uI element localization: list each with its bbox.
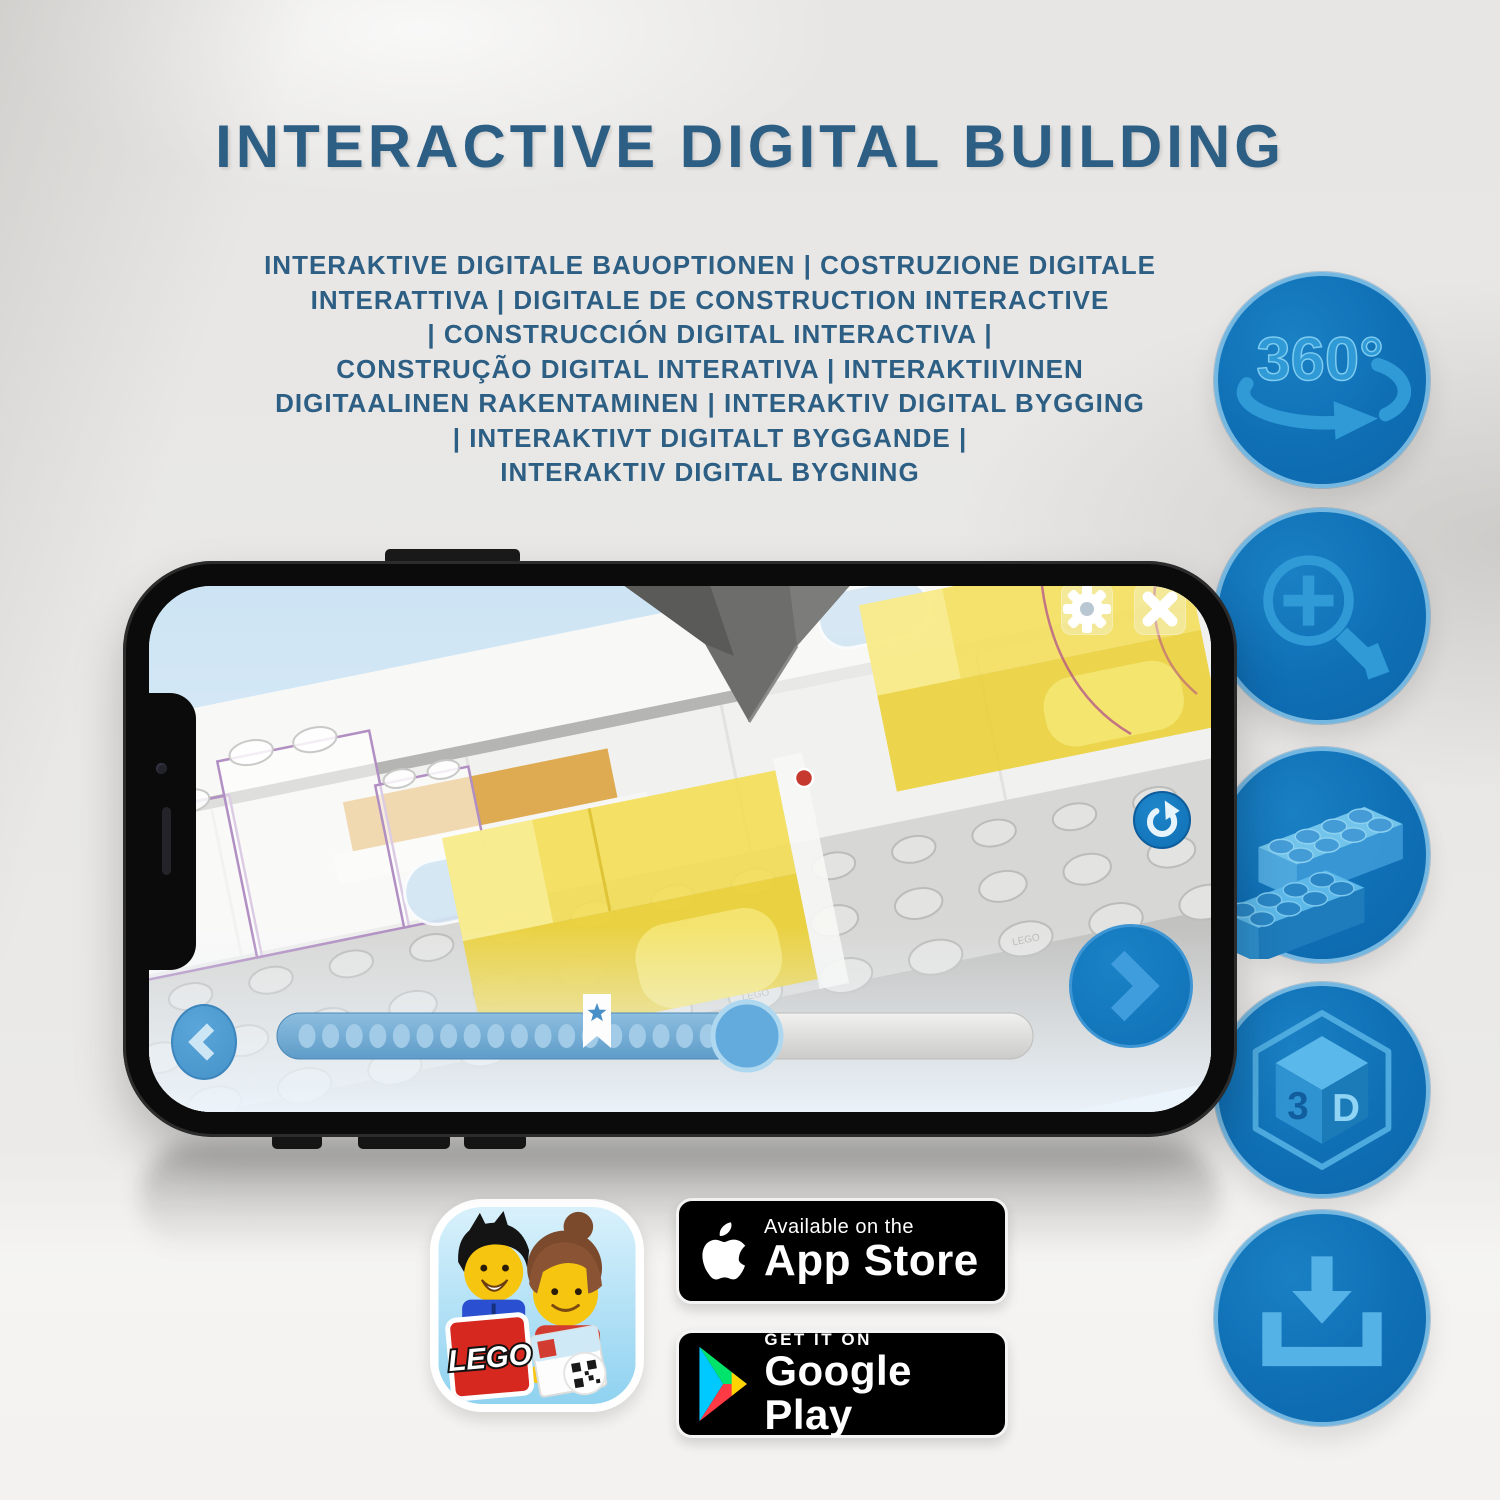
brick-icon xyxy=(1220,807,1403,959)
phone-screen: LEGO LEGO LEGO xyxy=(149,586,1211,1112)
feature-circle-zoom xyxy=(1214,508,1430,724)
chevron-left-icon xyxy=(196,1027,211,1057)
subtitle-line: | INTERAKTIVT DIGITALT BYGGANDE | xyxy=(110,421,1310,456)
speaker-slot xyxy=(162,807,171,875)
3d-view-icon: 3 D xyxy=(1256,1013,1389,1167)
rotate-360-icon: 360° xyxy=(1243,325,1404,440)
zoom-in-icon xyxy=(1268,560,1389,679)
camera-icon xyxy=(156,763,167,774)
app-store-badge-line1: Available on the xyxy=(764,1217,979,1238)
google-play-icon xyxy=(697,1345,749,1423)
feature-circle-3d: 3 D xyxy=(1214,982,1430,1198)
progress-handle[interactable] xyxy=(713,1002,781,1070)
lego-logo: LEGO xyxy=(445,1314,535,1400)
rotate-icon xyxy=(1150,800,1180,834)
phone-mockup: LEGO LEGO LEGO xyxy=(123,561,1237,1137)
previous-step-button[interactable] xyxy=(171,1004,237,1080)
app-store-badge[interactable]: Available on the App Store xyxy=(676,1198,1008,1304)
multilingual-subtitle: INTERAKTIVE DIGITALE BAUOPTIONEN | COSTR… xyxy=(110,248,1310,490)
rotate-view-button[interactable] xyxy=(1133,791,1191,849)
subtitle-line: | CONSTRUCCIÓN DIGITAL INTERACTIVA | xyxy=(110,317,1310,352)
settings-button[interactable] xyxy=(1061,586,1113,635)
close-icon xyxy=(1148,597,1172,621)
apple-icon xyxy=(697,1220,749,1282)
3d-label-d: D xyxy=(1332,1087,1360,1130)
feature-circle-download xyxy=(1214,1210,1430,1426)
google-play-badge[interactable]: GET IT ON Google Play xyxy=(676,1330,1008,1438)
next-step-button[interactable] xyxy=(1069,924,1193,1048)
subtitle-line: INTERAKTIV DIGITAL BYGNING xyxy=(110,455,1310,490)
feature-circle-360: 360° xyxy=(1214,272,1430,488)
instruction-booklet xyxy=(530,1325,608,1402)
page-title: INTERACTIVE DIGITAL BUILDING xyxy=(0,112,1500,181)
download-icon xyxy=(1262,1256,1381,1366)
subtitle-line: INTERAKTIVE DIGITALE BAUOPTIONEN | COSTR… xyxy=(110,248,1310,283)
feature-circle-brick xyxy=(1214,747,1430,963)
phone-notch xyxy=(149,693,196,970)
subtitle-line: DIGITAALINEN RAKENTAMINEN | INTERAKTIV D… xyxy=(110,386,1310,421)
chevron-right-icon xyxy=(1118,957,1147,1014)
app-store-badge-line2: App Store xyxy=(764,1238,979,1284)
build-progress-bar[interactable] xyxy=(244,986,1064,1096)
360-label: 360° xyxy=(1256,325,1383,394)
3d-label-3: 3 xyxy=(1287,1085,1308,1128)
subtitle-line: CONSTRUÇÃO DIGITAL INTERATIVA | INTERAKT… xyxy=(110,352,1310,387)
lego-app-icon[interactable]: LEGO xyxy=(430,1199,644,1412)
subtitle-line: INTERATTIVA | DIGITALE DE CONSTRUCTION I… xyxy=(110,283,1310,318)
poster-root: INTERACTIVE DIGITAL BUILDING INTERAKTIVE… xyxy=(0,0,1500,1500)
google-play-badge-line2: Google Play xyxy=(764,1349,1005,1437)
close-button[interactable] xyxy=(1134,586,1186,635)
